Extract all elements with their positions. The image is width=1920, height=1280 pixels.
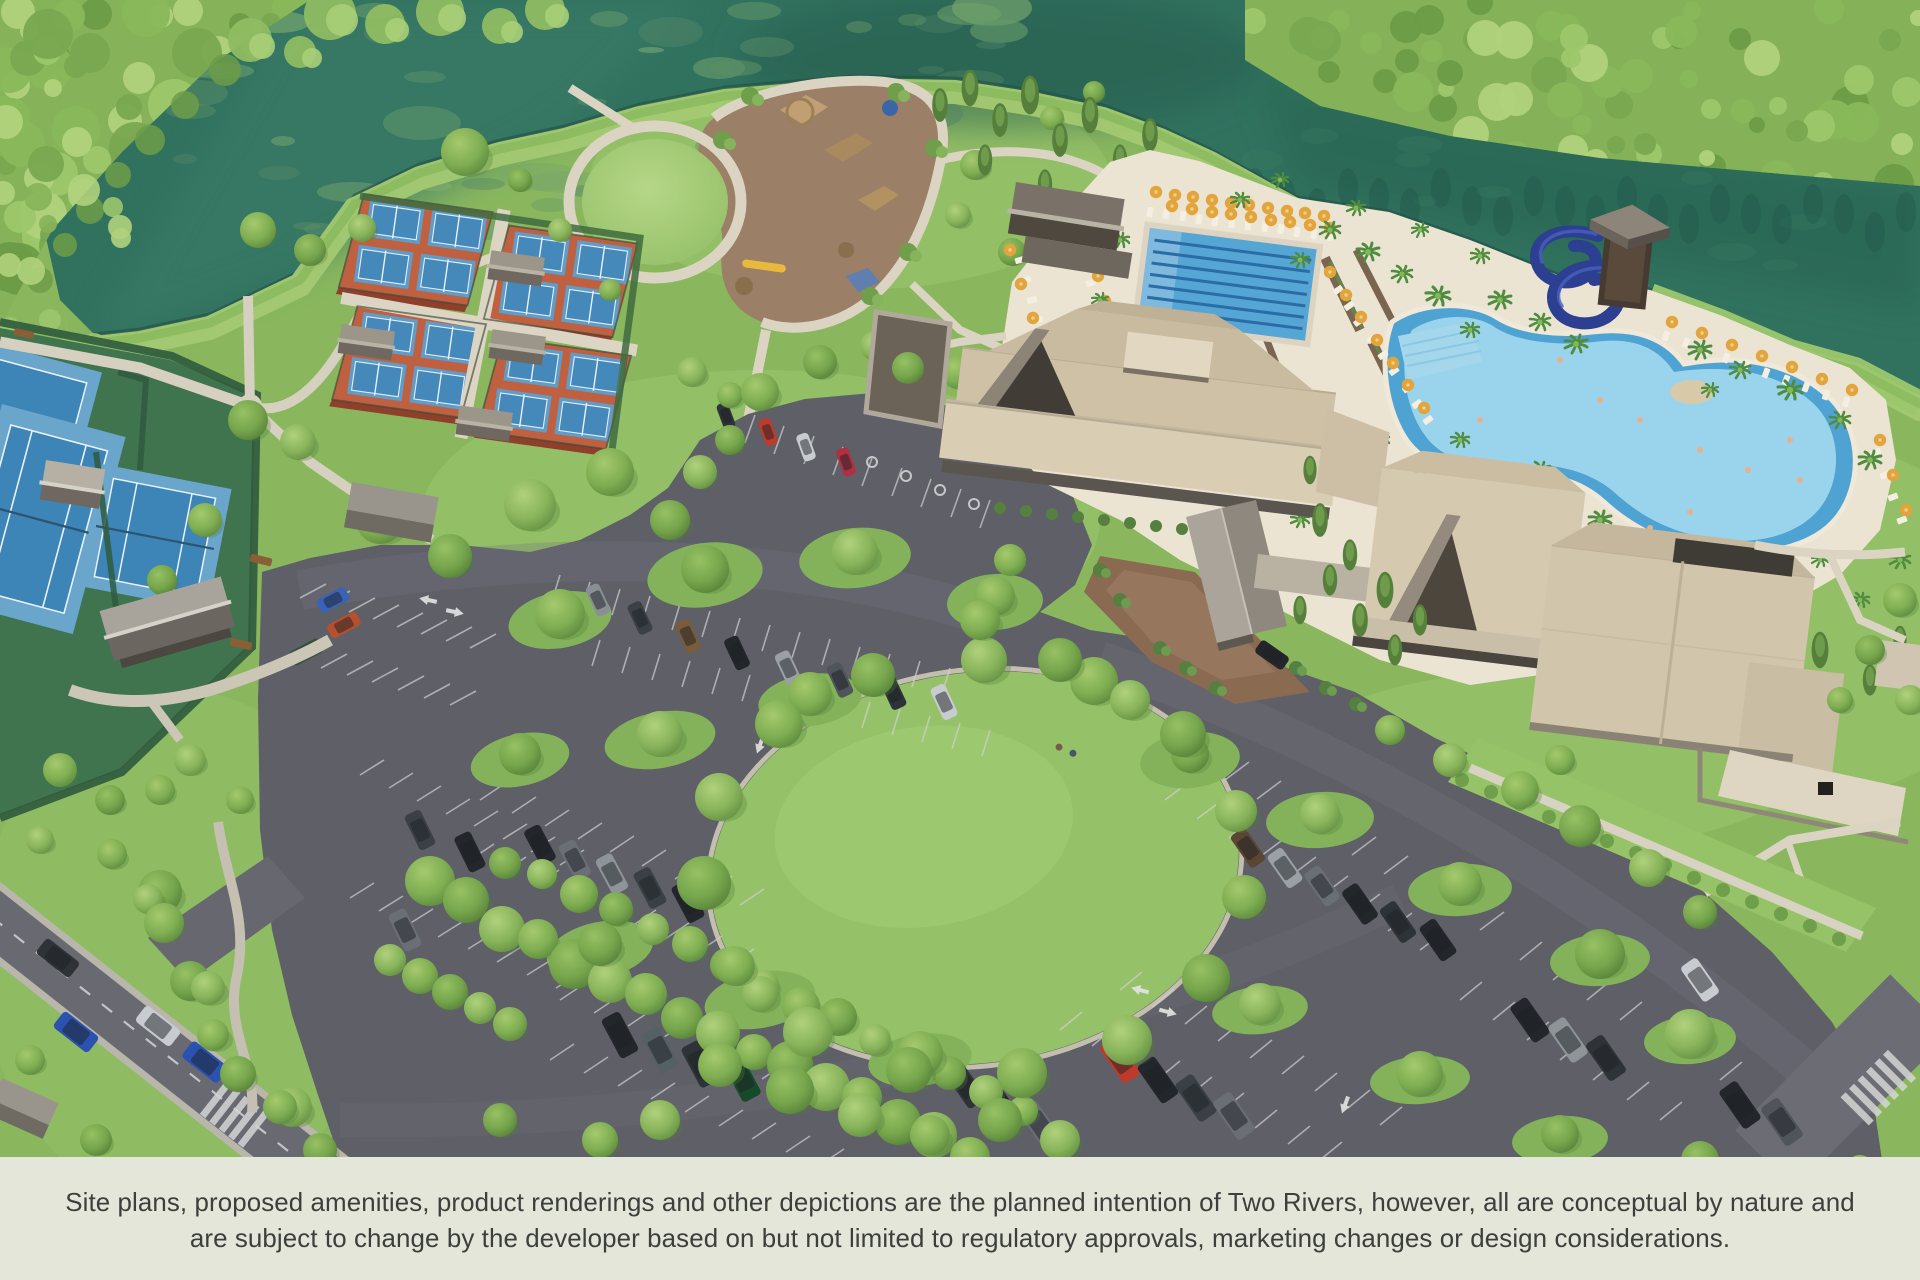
svg-text:are subject to change by the d: are subject to change by the developer b… [190, 1225, 1730, 1253]
svg-text:Site plans, proposed amenities: Site plans, proposed amenities, product … [65, 1189, 1855, 1217]
